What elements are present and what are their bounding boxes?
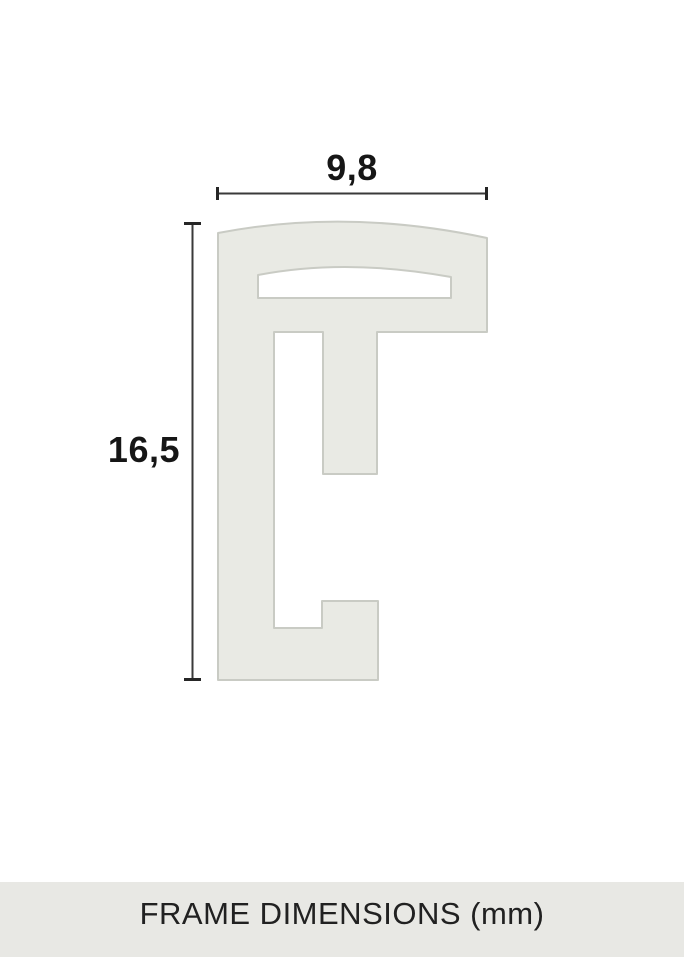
frame-profile-drawing [0, 0, 684, 957]
footer-bar: FRAME DIMENSIONS (mm) [0, 882, 684, 957]
footer-title: FRAME DIMENSIONS (mm) [0, 894, 684, 934]
frame-profile-cross-section-shape [218, 222, 487, 680]
width-dimension-label: 9,8 [252, 148, 452, 188]
height-dimension-label: 16,5 [40, 430, 180, 470]
width-dimension-line [217, 187, 487, 200]
frame-profile-diagram: 9,8 16,5 FRAME DIMENSIONS (mm) [0, 0, 684, 957]
height-dimension-line [184, 223, 201, 680]
